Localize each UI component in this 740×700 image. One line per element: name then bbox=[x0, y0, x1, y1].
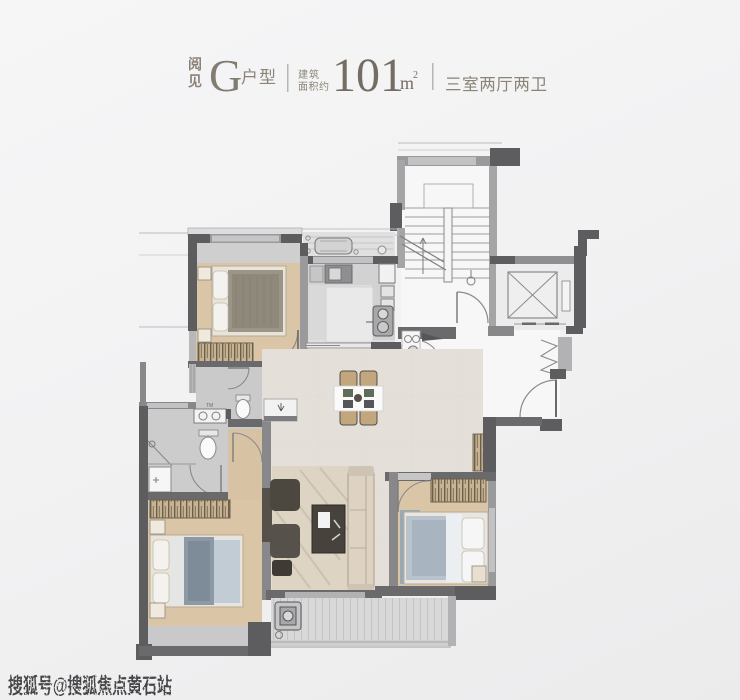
svg-text:G: G bbox=[209, 50, 242, 101]
svg-text:户型: 户型 bbox=[241, 68, 277, 87]
svg-text:面积约: 面积约 bbox=[298, 80, 330, 93]
svg-text:搜狐号@搜狐焦点黄石站: 搜狐号@搜狐焦点黄石站 bbox=[8, 674, 172, 698]
svg-text:见: 见 bbox=[188, 73, 202, 89]
svg-text:TM: TM bbox=[206, 403, 213, 409]
svg-text:阅: 阅 bbox=[188, 56, 202, 72]
svg-text:101: 101 bbox=[332, 49, 404, 102]
svg-text:建筑: 建筑 bbox=[298, 68, 320, 81]
svg-text:三室两厅两卫: 三室两厅两卫 bbox=[445, 75, 548, 94]
svg-text:2: 2 bbox=[413, 70, 418, 81]
svg-text:m: m bbox=[400, 73, 414, 93]
